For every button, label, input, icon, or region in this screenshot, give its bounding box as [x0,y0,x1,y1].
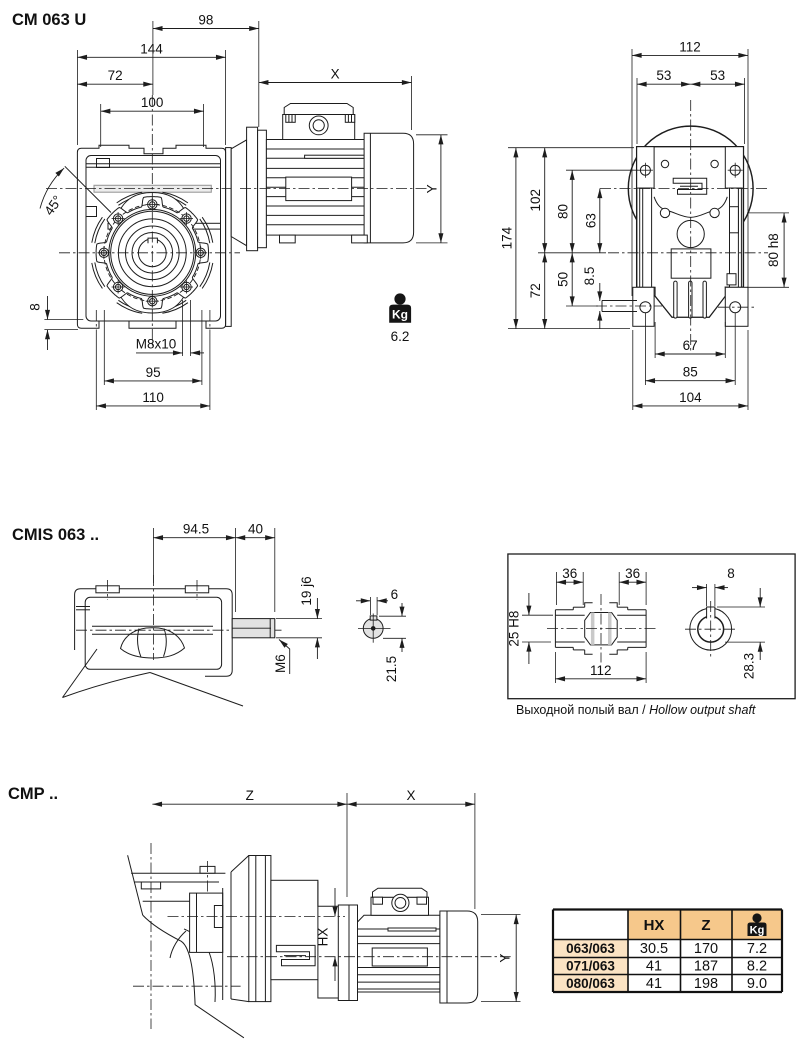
svg-text:94.5: 94.5 [183,522,209,537]
svg-text:100: 100 [141,95,164,110]
svg-text:Y: Y [424,184,439,193]
svg-text:Y: Y [498,954,513,963]
svg-text:CMP ..: CMP .. [8,785,58,803]
svg-text:8: 8 [727,566,735,581]
svg-text:72: 72 [528,283,543,298]
svg-text:36: 36 [625,566,640,581]
svg-text:53: 53 [656,68,671,83]
svg-text:36: 36 [562,566,577,581]
svg-text:28.3: 28.3 [742,653,757,679]
svg-text:50: 50 [556,272,571,287]
svg-text:19 j6: 19 j6 [299,576,314,605]
svg-text:170: 170 [694,941,718,957]
svg-text:110: 110 [142,390,164,405]
svg-text:53: 53 [710,68,725,83]
svg-text:25 H8: 25 H8 [507,611,522,647]
svg-text:080/063: 080/063 [566,976,615,991]
svg-text:85: 85 [683,365,698,380]
svg-text:8.5: 8.5 [582,267,597,286]
svg-text:6: 6 [391,587,399,602]
svg-text:Z: Z [246,788,254,803]
svg-text:174: 174 [499,226,514,249]
svg-text:198: 198 [694,976,718,992]
svg-text:8: 8 [28,303,43,311]
svg-text:6.2: 6.2 [391,329,410,344]
svg-text:40: 40 [248,522,263,537]
svg-text:21.5: 21.5 [384,656,399,682]
svg-text:30.5: 30.5 [640,941,668,957]
svg-text:X: X [331,67,340,82]
svg-text:M6: M6 [273,654,288,673]
svg-text:67: 67 [683,338,698,353]
svg-text:41: 41 [646,958,662,974]
svg-text:Kg: Kg [392,308,408,322]
svg-text:80: 80 [556,204,571,219]
svg-text:Z: Z [701,917,710,934]
svg-text:9.0: 9.0 [747,976,767,992]
svg-text:071/063: 071/063 [566,958,615,973]
svg-text:98: 98 [198,13,213,28]
svg-text:41: 41 [646,976,662,992]
svg-text:063/063: 063/063 [566,941,615,956]
svg-text:CM 063 U: CM 063 U [12,11,86,29]
svg-text:63: 63 [583,213,598,228]
svg-text:104: 104 [679,390,702,405]
svg-text:8.2: 8.2 [747,958,767,974]
svg-text:187: 187 [694,958,718,974]
svg-text:102: 102 [528,189,543,212]
svg-text:CMIS 063 ..: CMIS 063 .. [12,526,99,544]
svg-text:HX: HX [316,928,331,947]
svg-text:144: 144 [140,41,163,56]
svg-text:72: 72 [108,68,123,83]
svg-text:M8x10: M8x10 [136,337,177,352]
svg-text:112: 112 [590,663,612,678]
svg-text:7.2: 7.2 [747,941,767,957]
svg-text:112: 112 [679,39,701,54]
svg-text:80 h8: 80 h8 [766,233,781,267]
svg-text:Выходной полый вал / Hollow ou: Выходной полый вал / Hollow output shaft [516,703,756,717]
svg-text:Kg: Kg [750,925,765,937]
svg-text:X: X [406,788,415,803]
svg-text:HX: HX [644,917,665,934]
svg-text:95: 95 [146,365,161,380]
